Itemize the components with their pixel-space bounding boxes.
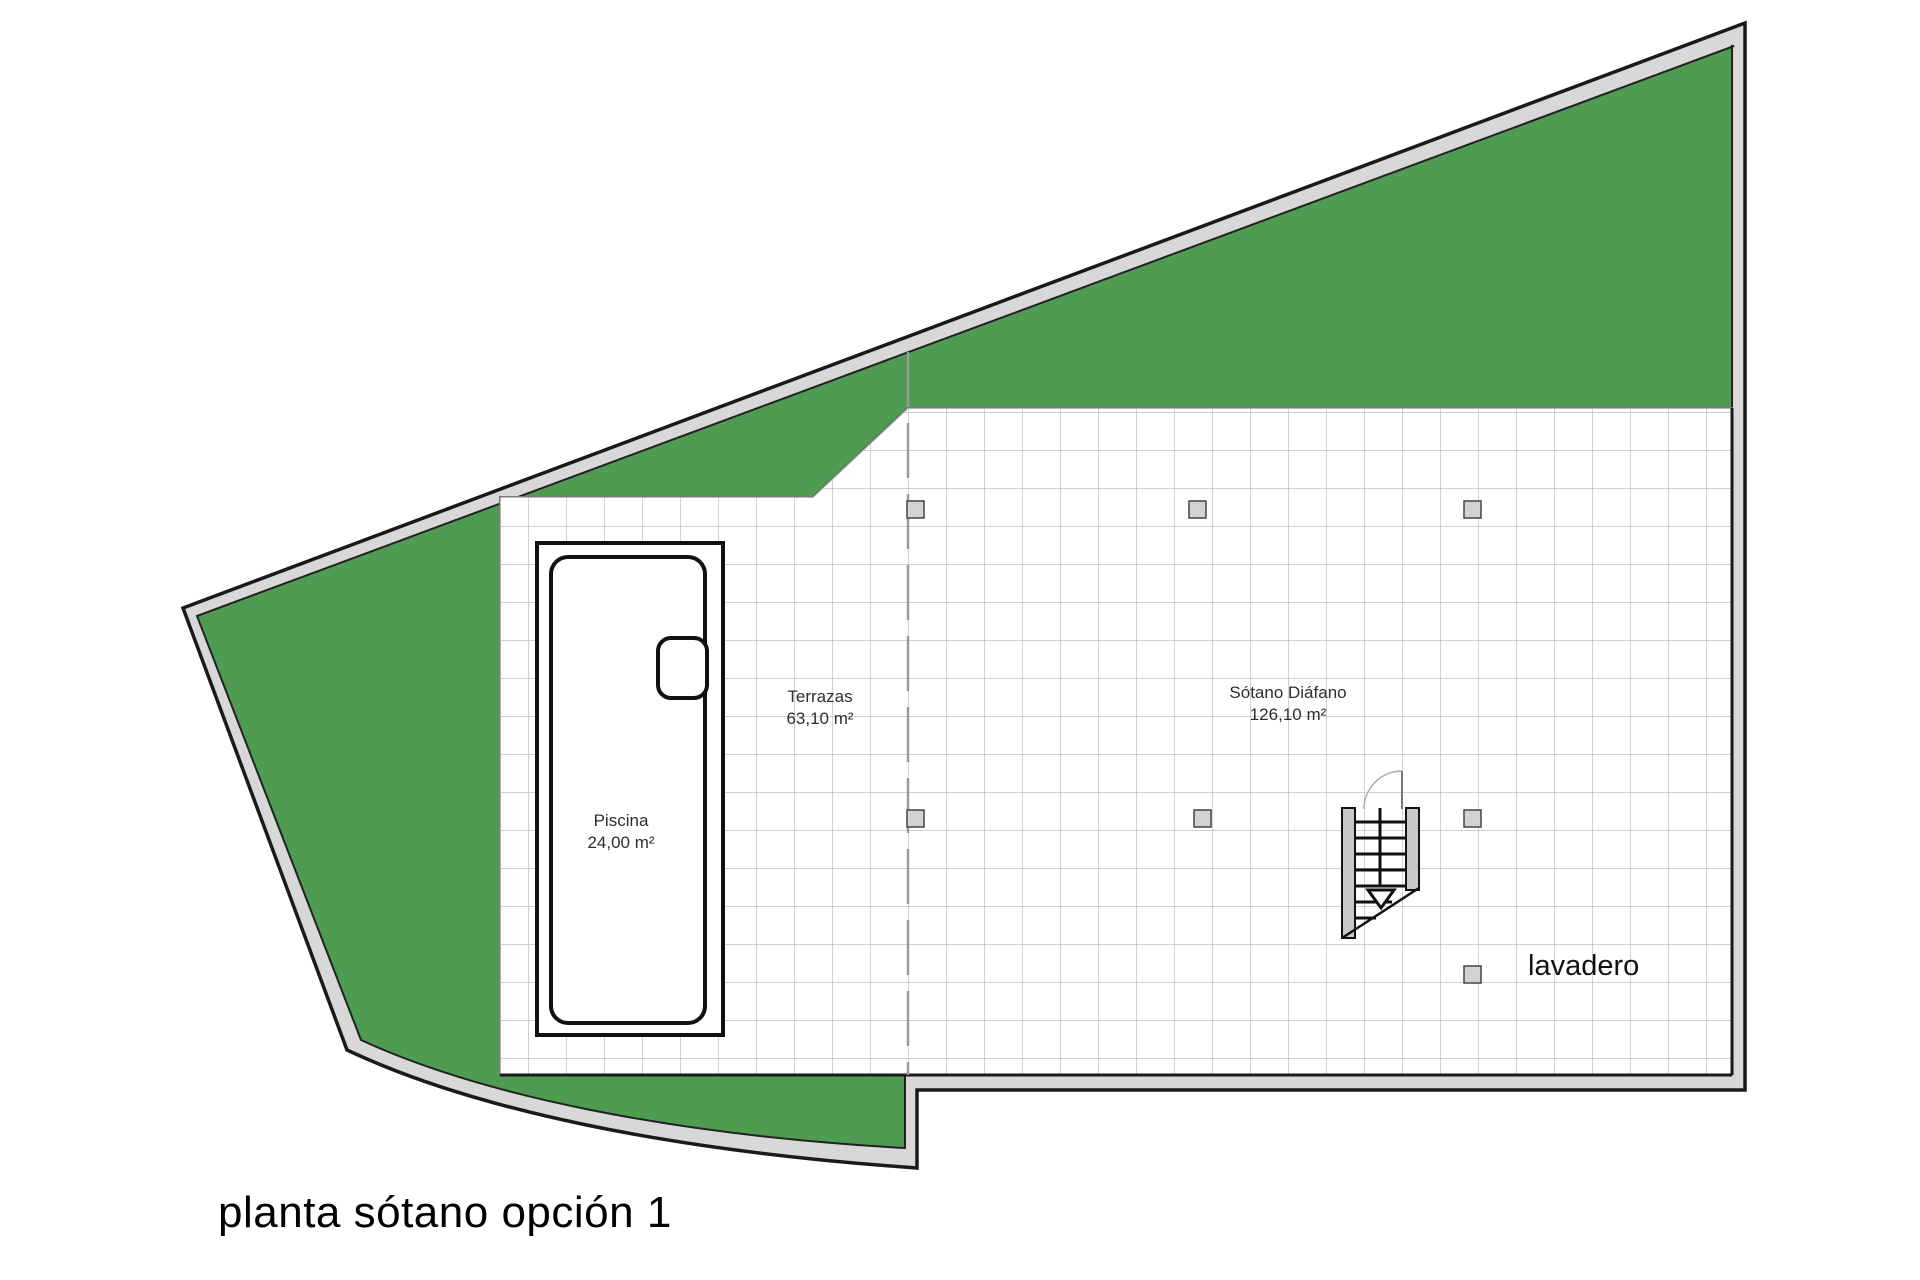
basement-label: Sótano Diáfano 126,10 m² xyxy=(1229,682,1346,726)
pool-name: Piscina xyxy=(587,810,654,832)
column-marker xyxy=(907,501,924,518)
terrace-label: Terrazas 63,10 m² xyxy=(786,686,853,730)
plan-title: planta sótano opción 1 xyxy=(218,1188,672,1238)
stair-stringer-right xyxy=(1406,808,1419,890)
floor-plan-drawing xyxy=(0,0,1920,1280)
basement-area: 126,10 m² xyxy=(1229,704,1346,726)
column-marker xyxy=(1194,810,1211,827)
floor-plan-page: Terrazas 63,10 m² Sótano Diáfano 126,10 … xyxy=(0,0,1920,1280)
column-marker xyxy=(1464,966,1481,983)
pool-label: Piscina 24,00 m² xyxy=(587,810,654,854)
laundry-label: lavadero xyxy=(1528,950,1639,983)
stair-stringer-left xyxy=(1342,808,1355,938)
pool-basin xyxy=(551,557,705,1023)
terrace-area: 63,10 m² xyxy=(786,708,853,730)
column-marker xyxy=(1464,501,1481,518)
terrace-name: Terrazas xyxy=(786,686,853,708)
pool-area: 24,00 m² xyxy=(587,832,654,854)
pool-steps xyxy=(658,638,707,698)
pool xyxy=(537,543,723,1035)
column-marker xyxy=(1464,810,1481,827)
column-marker xyxy=(907,810,924,827)
basement-name: Sótano Diáfano xyxy=(1229,682,1346,704)
column-marker xyxy=(1189,501,1206,518)
